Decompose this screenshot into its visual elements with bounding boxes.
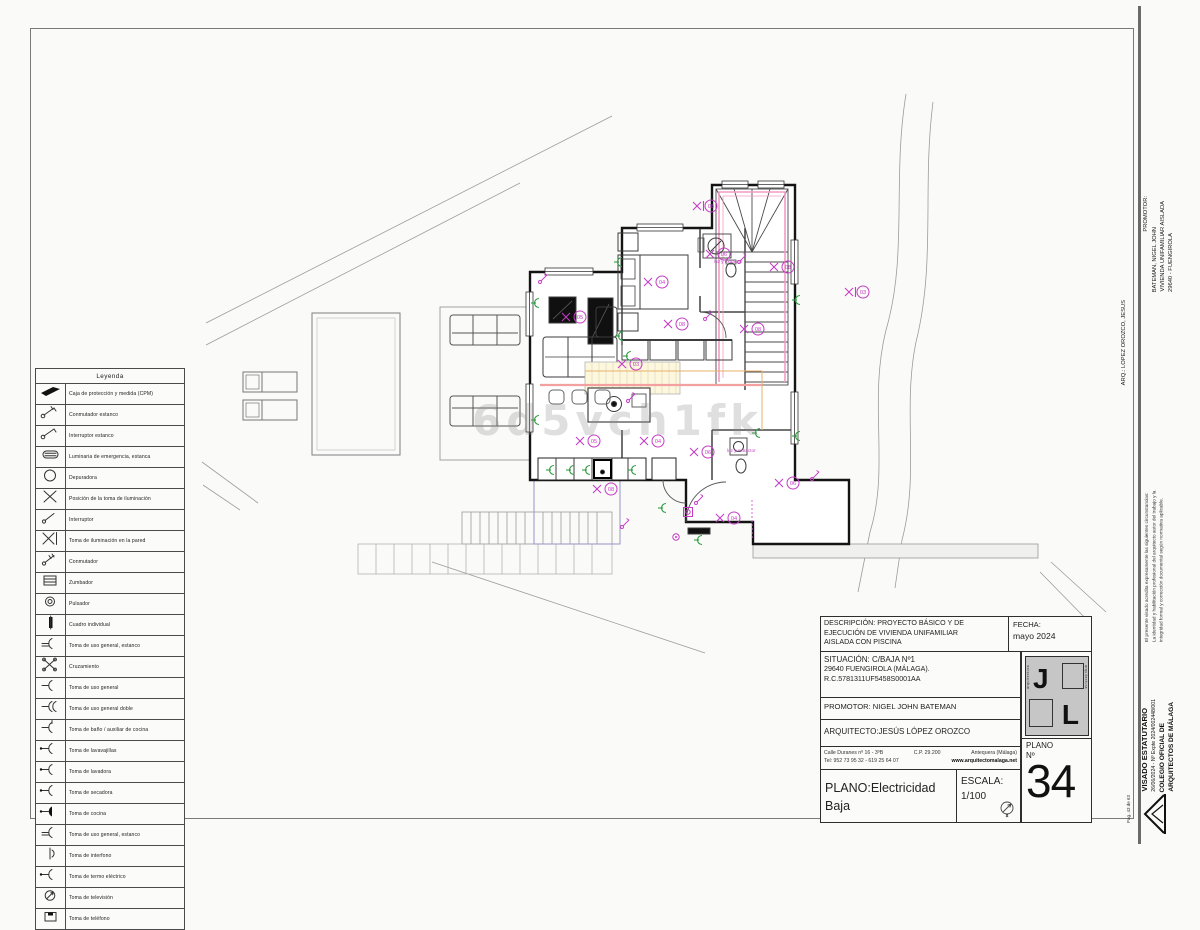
legend-label: Zumbador	[66, 573, 185, 594]
legend-symbol-tt-icon	[36, 867, 66, 888]
legend-symbol-int-icon	[36, 510, 66, 531]
legend-symbol-pos-icon	[36, 489, 66, 510]
strip-promoter-info: BATEMAN, NIGEL JOHN VIVIENDA UNIFAMILIAR…	[1152, 112, 1174, 292]
visado-stamp: VISADO ESTATUTARIO 26/06/2024 - Nº Expte…	[1140, 646, 1175, 792]
legend-symbol-tlv-icon	[36, 741, 66, 762]
watermark: 6d5vch1fk	[472, 396, 763, 445]
svg-text:06: 06	[790, 481, 796, 487]
legend-label: Luminaria de emergencia, estanca	[66, 447, 185, 468]
legend-row: Toma de cocina	[36, 804, 185, 825]
svg-text:luz y extractor: luz y extractor	[727, 448, 756, 453]
legend-symbol-tge-icon	[36, 636, 66, 657]
symbol-l: 08	[593, 483, 617, 495]
legend-label: Toma de baño / auxiliar de cocina	[66, 720, 185, 741]
svg-text:08: 08	[679, 322, 685, 328]
legend-label: Interruptor	[66, 510, 185, 531]
plan-name-cell: PLANO:Electricidad Baja	[821, 770, 957, 822]
legend-label: Toma de uso general, estanco	[66, 825, 185, 846]
legend-symbol-ttel-icon	[36, 909, 66, 930]
legend-label: Interruptor estanco	[66, 426, 185, 447]
visado-note: El presente visado acredita expresamente…	[1143, 490, 1165, 642]
legend-symbol-ti-icon	[36, 846, 66, 867]
exterior-walls	[530, 185, 849, 544]
legend-label: Conmutador estanco	[66, 405, 185, 426]
legend-symbol-tc-icon	[36, 804, 66, 825]
north-compass-icon	[997, 799, 1017, 819]
legend-label: Conmutador	[66, 552, 185, 573]
legend-row: Depuradora	[36, 468, 185, 489]
sun-loungers	[243, 372, 297, 420]
legend-row: Luminaria de emergencia, estanca	[36, 447, 185, 468]
legend-label: Toma de iluminación en la pared	[66, 531, 185, 552]
strip-architect-label: ARQ.: LOPEZ OROZCO, JESUS	[1121, 300, 1127, 385]
legend-row: Interruptor	[36, 510, 185, 531]
symbol-wl: 03	[845, 286, 869, 298]
legend-label: Pulsador	[66, 594, 185, 615]
legend-label: Toma de secadora	[66, 783, 185, 804]
legend-symbol-tg-icon	[36, 678, 66, 699]
legend-row: Conmutador estanco	[36, 405, 185, 426]
legend-label: Toma de interfono	[66, 846, 185, 867]
legend-symbol-ts-icon	[36, 783, 66, 804]
legend-row: Toma de secadora	[36, 783, 185, 804]
legend-symbol-conm_est-icon	[36, 405, 66, 426]
legend-row: Caja de protección y medida (CPM)	[36, 384, 185, 405]
legend-row: Toma de interfono	[36, 846, 185, 867]
legend-label: Toma de uso general doble	[66, 699, 185, 720]
coa-malaga-logo-icon	[1141, 790, 1169, 838]
architect-cell: ARQUITECTO:JESÚS LÓPEZ OROZCO	[821, 720, 1021, 747]
svg-text:03: 03	[860, 290, 866, 296]
promoter-cell: PROMOTOR: NIGEL JOHN BATEMAN	[821, 698, 1021, 720]
legend-symbol-tl-icon	[36, 762, 66, 783]
legend-symbol-cpm-icon	[36, 384, 66, 405]
svg-text:06: 06	[705, 450, 711, 456]
legend-label: Toma de uso general	[66, 678, 185, 699]
svg-text:04: 04	[659, 280, 665, 286]
legend-label: Toma de lavadora	[66, 762, 185, 783]
legend: Leyenda Caja de protección y medida (CPM…	[35, 368, 185, 930]
svg-text:06: 06	[721, 252, 727, 258]
floor-plan: 080608030405080803050406080604luz y extr…	[195, 80, 1110, 680]
legend-label: Cuadro individual	[66, 615, 185, 636]
svg-text:04: 04	[731, 516, 737, 522]
legend-row: Cuadro individual	[36, 615, 185, 636]
legend-row: Conmutador	[36, 552, 185, 573]
architectural-drawing-page: { "watermark": "6d5vch1fk", "legend": { …	[0, 0, 1200, 848]
legend-label: Toma de televisión	[66, 888, 185, 909]
legend-label: Toma de termo eléctrico	[66, 867, 185, 888]
legend-row: Posición de la toma de iluminación	[36, 489, 185, 510]
legend-label: Toma de lavavajillas	[66, 741, 185, 762]
symbol-txt: luz y extractor	[727, 448, 756, 453]
legend-symbol-puls-icon	[36, 594, 66, 615]
legend-row: Pulsador	[36, 594, 185, 615]
svg-text:05: 05	[577, 315, 583, 321]
legend-label: Toma de teléfono	[66, 909, 185, 930]
legend-label: Toma de cocina	[66, 804, 185, 825]
title-block: DESCRIPCIÓN: PROYECTO BÁSICO Y DE EJECUC…	[820, 616, 1092, 823]
strip-promoter-label: PROMOTOR:	[1143, 196, 1149, 232]
legend-label: Toma de uso general, estanco	[66, 636, 185, 657]
legend-row: Toma de termo eléctrico	[36, 867, 185, 888]
legend-symbol-cuadro-icon	[36, 615, 66, 636]
svg-text:08: 08	[608, 487, 614, 493]
legend-symbol-tb-icon	[36, 720, 66, 741]
symbol-sw	[621, 519, 630, 529]
legend-row: Toma de uso general, estanco	[36, 636, 185, 657]
svg-text:08: 08	[785, 265, 791, 271]
legend-symbol-depur-icon	[36, 468, 66, 489]
legend-symbol-pared-icon	[36, 531, 66, 552]
outdoor-steps	[358, 512, 612, 574]
legend-symbol-tgd-icon	[36, 699, 66, 720]
legend-row: Toma de uso general	[36, 678, 185, 699]
legend-symbol-emerg-icon	[36, 447, 66, 468]
legend-row: Interruptor estanco	[36, 426, 185, 447]
porch-slab	[753, 544, 1038, 558]
address-cell: Calle Duranes nº 16 - 3ºB C.P. 29.200 An…	[821, 747, 1021, 770]
drawing-sheet: 080608030405080803050406080604luz y extr…	[0, 0, 1200, 848]
legend-row: Zumbador	[36, 573, 185, 594]
legend-row: Toma de uso general, estanco	[36, 825, 185, 846]
svg-text:03: 03	[633, 362, 639, 368]
legend-row: Toma de lavavajillas	[36, 741, 185, 762]
symbol-b	[673, 534, 679, 540]
legend-row: Cruzamiento	[36, 657, 185, 678]
legend-row: Toma de teléfono	[36, 909, 185, 930]
legend-label: Depuradora	[66, 468, 185, 489]
plan-number: 34	[1026, 760, 1087, 804]
legend-symbol-zumb-icon	[36, 573, 66, 594]
symbol-s	[694, 536, 702, 545]
plan-number-cell: PLANO Nº 34	[1021, 738, 1091, 822]
description-cell: DESCRIPCIÓN: PROYECTO BÁSICO Y DE EJECUC…	[821, 617, 1009, 652]
legend-symbol-cruz-icon	[36, 657, 66, 678]
location-cell: SITUACIÓN: C/BAJA Nº1 29640 FUENGIROLA (…	[821, 652, 1021, 698]
scale-cell: ESCALA: 1/100	[957, 770, 1021, 822]
architect-logo: J L arquitectura arquitectura	[1025, 656, 1089, 736]
legend-symbol-tge2-icon	[36, 825, 66, 846]
legend-row: Toma de iluminación en la pared	[36, 531, 185, 552]
svg-text:08: 08	[755, 327, 761, 333]
symbol-s	[658, 504, 666, 513]
legend-label: Cruzamiento	[66, 657, 185, 678]
svg-text:08: 08	[708, 204, 714, 210]
pool	[312, 313, 400, 455]
date-cell: FECHA: mayo 2024	[1009, 617, 1091, 652]
legend-row: Toma de uso general doble	[36, 699, 185, 720]
legend-title: Leyenda	[36, 369, 185, 384]
legend-row: Toma de lavadora	[36, 762, 185, 783]
page-number: Pag. 43 de 63	[1126, 795, 1131, 823]
legend-row: Toma de televisión	[36, 888, 185, 909]
legend-symbol-ttv-icon	[36, 888, 66, 909]
legend-label: Caja de protección y medida (CPM)	[66, 384, 185, 405]
legend-row: Toma de baño / auxiliar de cocina	[36, 720, 185, 741]
legend-label: Posición de la toma de iluminación	[66, 489, 185, 510]
legend-symbol-int_est-icon	[36, 426, 66, 447]
legend-symbol-conm-icon	[36, 552, 66, 573]
